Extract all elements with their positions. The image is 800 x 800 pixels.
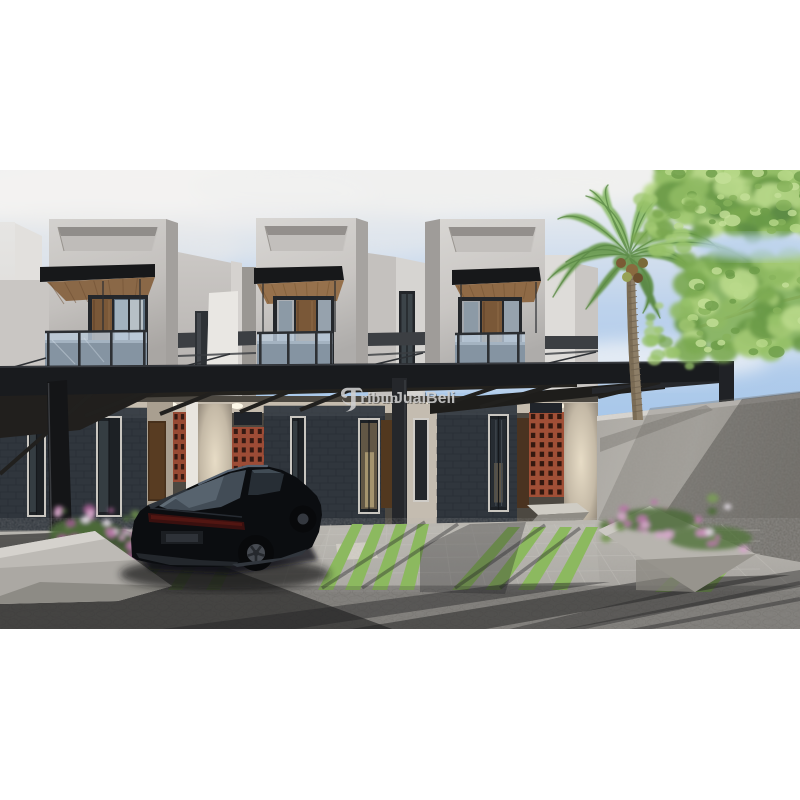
svg-text:JualBeli: JualBeli (394, 390, 455, 407)
svg-text:ribun: ribun (360, 390, 398, 407)
